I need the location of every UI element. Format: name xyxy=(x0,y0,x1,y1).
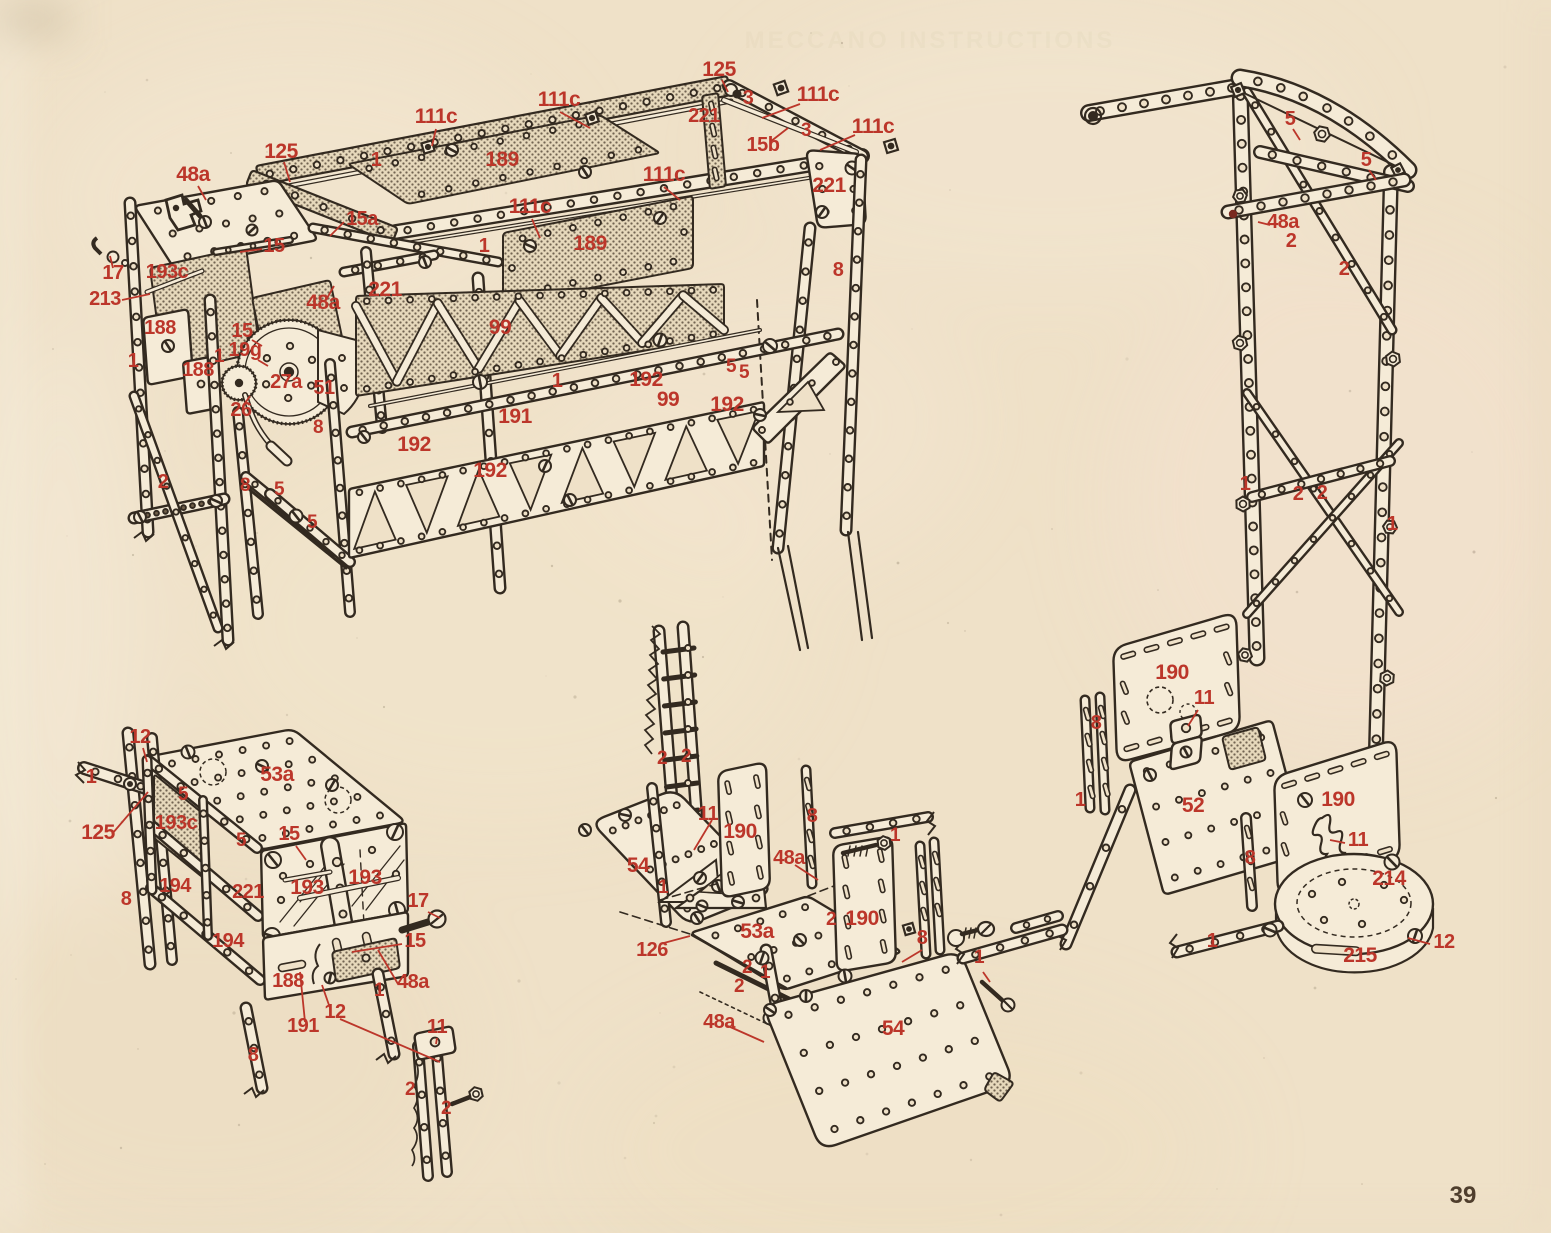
svg-text:213: 213 xyxy=(89,288,121,310)
svg-text:1: 1 xyxy=(214,346,225,367)
svg-text:2: 2 xyxy=(734,976,744,997)
svg-text:15: 15 xyxy=(263,235,285,257)
svg-text:221: 221 xyxy=(232,881,264,903)
svg-text:190: 190 xyxy=(1155,661,1189,684)
svg-text:190: 190 xyxy=(723,820,757,843)
svg-text:2: 2 xyxy=(742,957,752,978)
svg-text:8: 8 xyxy=(248,1044,259,1066)
svg-text:192: 192 xyxy=(473,459,507,482)
svg-text:5: 5 xyxy=(274,479,285,500)
svg-text:99: 99 xyxy=(657,388,679,411)
svg-text:1: 1 xyxy=(658,877,669,898)
svg-text:8: 8 xyxy=(313,417,323,438)
svg-text:192: 192 xyxy=(397,433,431,456)
svg-text:5: 5 xyxy=(1285,108,1296,130)
svg-text:8: 8 xyxy=(833,259,844,281)
svg-text:53a: 53a xyxy=(260,763,294,786)
svg-text:3: 3 xyxy=(743,87,754,109)
svg-text:193: 193 xyxy=(348,866,382,889)
svg-text:1: 1 xyxy=(1387,513,1398,535)
svg-text:51: 51 xyxy=(313,377,335,399)
svg-text:48a: 48a xyxy=(176,163,210,186)
svg-text:39: 39 xyxy=(1450,1182,1477,1209)
svg-text:1: 1 xyxy=(552,370,563,392)
svg-text:48a: 48a xyxy=(306,291,340,314)
svg-text:1: 1 xyxy=(374,980,385,1001)
svg-text:MECCANO INSTRUCTIONS: MECCANO INSTRUCTIONS xyxy=(745,27,1116,54)
svg-text:15: 15 xyxy=(404,930,426,952)
svg-text:125: 125 xyxy=(702,58,736,81)
svg-text:2: 2 xyxy=(1293,483,1304,505)
svg-text:5: 5 xyxy=(726,356,737,377)
svg-text:5: 5 xyxy=(236,830,247,851)
svg-text:3: 3 xyxy=(801,120,811,141)
svg-text:5: 5 xyxy=(178,784,189,805)
svg-text:11: 11 xyxy=(698,803,719,825)
svg-text:52: 52 xyxy=(1182,794,1204,817)
svg-text:54: 54 xyxy=(627,854,650,877)
svg-text:1: 1 xyxy=(86,766,97,788)
svg-text:54: 54 xyxy=(882,1017,905,1040)
svg-text:190: 190 xyxy=(1321,788,1355,811)
svg-text:193c: 193c xyxy=(155,812,198,834)
svg-text:17: 17 xyxy=(407,890,429,912)
svg-text:27a: 27a xyxy=(270,371,303,393)
svg-text:48a: 48a xyxy=(703,1011,736,1033)
svg-text:111c: 111c xyxy=(509,195,552,218)
svg-text:111c: 111c xyxy=(643,163,686,186)
svg-text:11: 11 xyxy=(427,1016,448,1038)
svg-text:193: 193 xyxy=(290,876,324,899)
svg-text:53a: 53a xyxy=(740,920,774,943)
svg-text:221: 221 xyxy=(688,105,720,127)
svg-text:188: 188 xyxy=(182,359,214,381)
svg-text:221: 221 xyxy=(812,174,846,197)
svg-text:190: 190 xyxy=(845,907,879,930)
svg-text:1: 1 xyxy=(128,350,139,372)
svg-text:8: 8 xyxy=(1245,847,1256,869)
svg-text:2: 2 xyxy=(441,1098,451,1119)
svg-text:111c: 111c xyxy=(538,88,581,111)
svg-text:8: 8 xyxy=(1091,712,1102,734)
svg-text:188: 188 xyxy=(144,317,176,339)
svg-text:1: 1 xyxy=(974,947,985,968)
svg-text:189: 189 xyxy=(485,148,519,171)
svg-text:2: 2 xyxy=(405,1079,415,1100)
svg-text:191: 191 xyxy=(287,1015,319,1037)
svg-text:1: 1 xyxy=(890,825,901,846)
svg-text:189: 189 xyxy=(573,232,607,255)
svg-text:111c: 111c xyxy=(797,83,840,106)
svg-text:194: 194 xyxy=(212,930,245,952)
svg-text:221: 221 xyxy=(368,278,402,301)
svg-text:191: 191 xyxy=(498,405,532,428)
svg-text:2: 2 xyxy=(1317,482,1328,504)
svg-text:5: 5 xyxy=(739,362,750,383)
svg-text:111c: 111c xyxy=(852,115,895,138)
svg-text:1: 1 xyxy=(1207,930,1218,952)
svg-text:125: 125 xyxy=(264,140,298,163)
svg-text:12: 12 xyxy=(129,726,151,748)
svg-text:1: 1 xyxy=(760,962,771,983)
svg-text:12: 12 xyxy=(324,1001,346,1023)
svg-text:19g: 19g xyxy=(229,339,262,361)
svg-text:99: 99 xyxy=(489,316,511,339)
svg-text:2: 2 xyxy=(681,746,691,767)
svg-text:48a: 48a xyxy=(397,971,430,993)
svg-text:2: 2 xyxy=(657,748,667,769)
svg-text:15a: 15a xyxy=(346,208,379,230)
svg-text:15: 15 xyxy=(278,823,300,845)
svg-text:8: 8 xyxy=(807,805,818,827)
svg-text:8: 8 xyxy=(240,475,250,496)
svg-text:11: 11 xyxy=(1348,829,1369,851)
svg-text:214: 214 xyxy=(1372,867,1406,890)
svg-text:2: 2 xyxy=(1339,258,1350,280)
svg-text:194: 194 xyxy=(159,875,192,897)
svg-text:111c: 111c xyxy=(415,105,458,128)
svg-text:192: 192 xyxy=(710,393,744,416)
svg-text:193c: 193c xyxy=(146,261,189,283)
svg-text:2: 2 xyxy=(826,909,836,930)
svg-text:8: 8 xyxy=(121,888,132,910)
svg-text:2: 2 xyxy=(1286,230,1297,252)
svg-text:1: 1 xyxy=(1075,789,1086,811)
svg-text:5: 5 xyxy=(307,512,318,533)
svg-text:126: 126 xyxy=(636,939,668,961)
svg-text:26: 26 xyxy=(230,399,252,421)
svg-text:8: 8 xyxy=(917,927,928,949)
svg-text:5: 5 xyxy=(1361,149,1372,171)
svg-text:48a: 48a xyxy=(773,847,806,869)
svg-text:12: 12 xyxy=(1433,931,1455,953)
svg-text:1: 1 xyxy=(1240,473,1251,495)
svg-text:2: 2 xyxy=(158,471,169,493)
svg-text:215: 215 xyxy=(1343,944,1377,967)
svg-text:1: 1 xyxy=(479,235,490,257)
svg-text:125: 125 xyxy=(81,821,115,844)
svg-text:1: 1 xyxy=(371,149,382,171)
svg-text:11: 11 xyxy=(1194,687,1215,709)
